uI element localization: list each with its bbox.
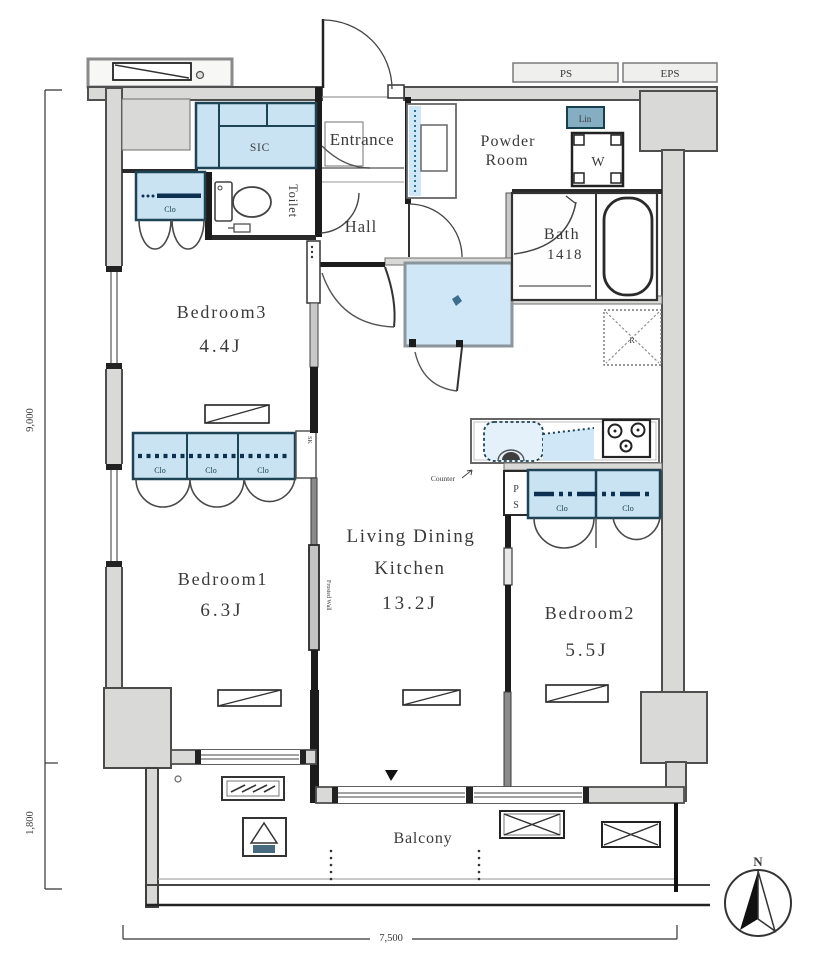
svg-text:Entrance: Entrance [330, 130, 394, 149]
svg-text:PS: PS [560, 68, 572, 80]
svg-text:Clo: Clo [257, 466, 269, 475]
svg-text:5.5J: 5.5J [565, 640, 608, 661]
svg-text:9,000: 9,000 [25, 408, 36, 432]
svg-text:SK: SK [306, 436, 312, 444]
svg-text:13.2J: 13.2J [382, 593, 438, 614]
svg-text:1418: 1418 [547, 247, 583, 263]
svg-text:Bath: Bath [544, 226, 580, 243]
svg-text:7,500: 7,500 [379, 933, 403, 944]
svg-text:Balcony: Balcony [394, 830, 453, 847]
svg-text:R: R [629, 336, 635, 345]
svg-text:N: N [753, 854, 763, 869]
svg-text:1,800: 1,800 [25, 811, 36, 835]
svg-text:S: S [513, 500, 519, 511]
svg-text:Clo: Clo [164, 205, 176, 214]
svg-text:Lin: Lin [579, 114, 592, 124]
svg-text:Counter: Counter [431, 474, 456, 483]
svg-text:Hall: Hall [345, 217, 377, 236]
svg-text:Clo: Clo [154, 466, 166, 475]
svg-text:Bedroom2: Bedroom2 [545, 603, 635, 623]
svg-text:EPS: EPS [661, 68, 680, 80]
svg-text:P: P [513, 484, 519, 495]
svg-text:6.3J: 6.3J [200, 600, 243, 621]
svg-text:W: W [591, 155, 605, 170]
svg-text:Bedroom3: Bedroom3 [177, 302, 267, 322]
svg-text:Room: Room [485, 152, 528, 169]
svg-text:Kitchen: Kitchen [374, 558, 445, 579]
svg-text:Bedroom1: Bedroom1 [178, 569, 268, 589]
svg-text:Clo: Clo [622, 504, 634, 513]
svg-text:Powder: Powder [481, 133, 536, 150]
svg-text:Toilet: Toilet [286, 184, 300, 218]
svg-text:SIC: SIC [250, 142, 270, 154]
svg-text:Clo: Clo [556, 504, 568, 513]
svg-text:Clo: Clo [205, 466, 217, 475]
svg-text:4.4J: 4.4J [199, 336, 242, 357]
svg-text:Living Dining: Living Dining [347, 526, 476, 547]
svg-text:Frosted Wall: Frosted Wall [325, 580, 331, 611]
